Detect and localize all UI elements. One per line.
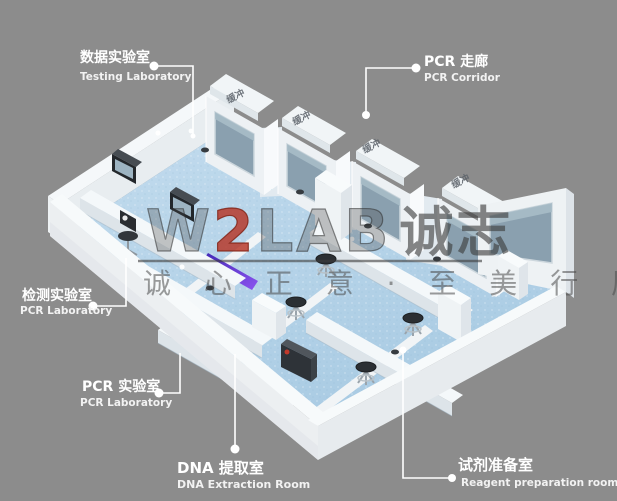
watermark-slogan: 诚 心 正 意 · 至 美 行 厉: [143, 267, 617, 300]
watermark-lab: LAB: [256, 197, 391, 265]
room-label-cn: PCR 实验室: [82, 378, 160, 395]
leader-dot: [412, 64, 421, 73]
room-label-cn: 检测实验室: [22, 287, 92, 304]
room-label-cn: PCR 走廊: [424, 53, 488, 70]
leader-dot: [150, 62, 159, 71]
lab-rendering: 缓冲 缓冲 缓冲 缓冲 W2LAB诚志 诚 心 正 意 · 至 美 行 厉 数据…: [0, 0, 617, 501]
watermark-cn: 诚志: [399, 201, 513, 264]
leader-dot: [231, 445, 240, 454]
room-label-en: PCR Laboratory: [20, 305, 112, 317]
room-label-en: Testing Laboratory: [80, 71, 192, 83]
leader-dot: [448, 474, 456, 482]
leader-dot: [362, 111, 370, 119]
leader-dot: [400, 347, 407, 354]
watermark-brand: W2LAB诚志: [146, 197, 513, 265]
leader-dot: [191, 134, 196, 139]
watermark-two: 2: [213, 197, 256, 265]
room-label-cn: 数据实验室: [80, 49, 150, 66]
watermark-w: W: [146, 197, 213, 265]
room-label-en: Reagent preparation room: [461, 477, 617, 489]
room-label-en: PCR Laboratory: [80, 397, 172, 409]
floor-plan-svg: 缓冲 缓冲 缓冲 缓冲 W2LAB诚志 诚 心 正 意 · 至 美 行 厉 数据…: [0, 0, 617, 501]
room-label-en: DNA Extraction Room: [177, 478, 310, 491]
room-label-cn: 试剂准备室: [458, 456, 533, 474]
room-label-cn: DNA 提取室: [177, 459, 264, 477]
indicator-light: [285, 350, 290, 355]
room-label-en: PCR Corridor: [424, 72, 501, 84]
